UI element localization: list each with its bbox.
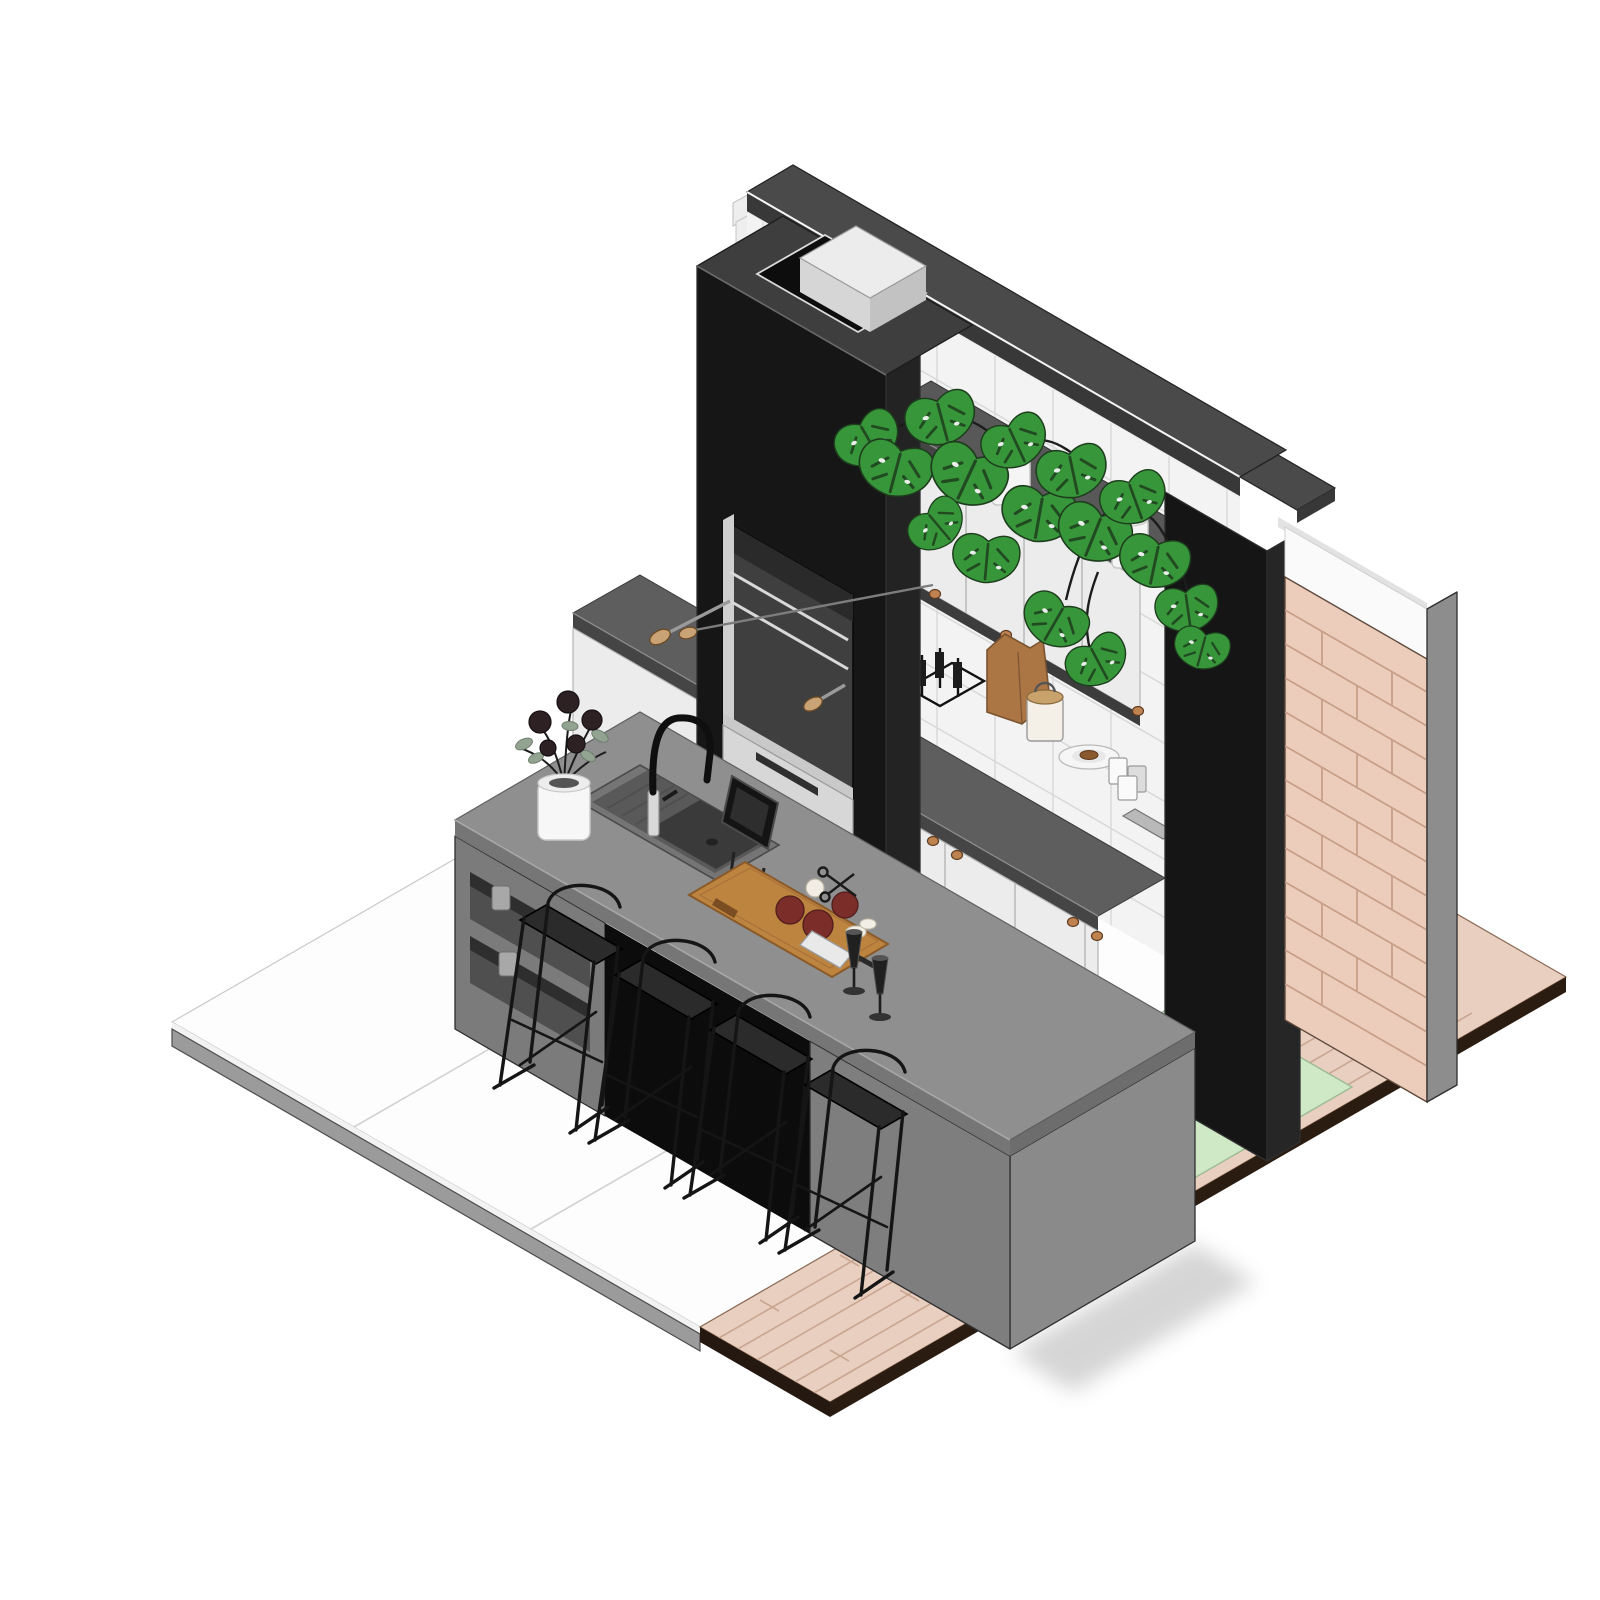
isometric-kitchen-render bbox=[0, 0, 1600, 1600]
brick-side-wall bbox=[1278, 517, 1457, 1102]
canister bbox=[1027, 683, 1063, 741]
render-canvas bbox=[0, 0, 1600, 1600]
side-wall-edge bbox=[1427, 592, 1457, 1102]
